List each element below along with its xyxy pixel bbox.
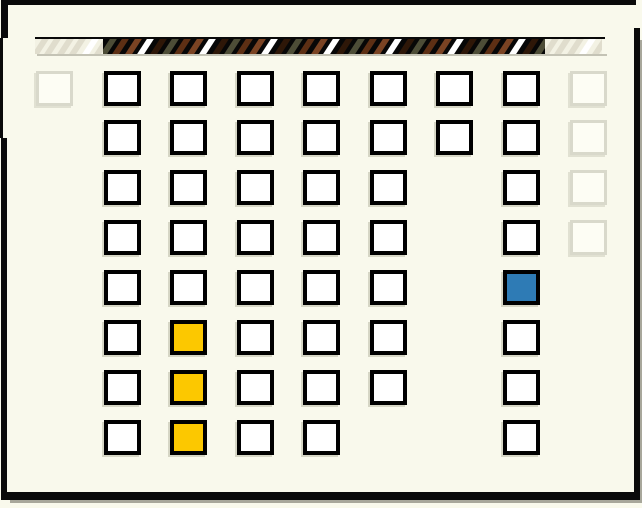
- cell-r3-c8[interactable]: [503, 170, 540, 205]
- cell-r5-c6[interactable]: [370, 270, 407, 305]
- cell-r2-c3[interactable]: [170, 120, 207, 155]
- cell-r1-c3[interactable]: [170, 71, 207, 106]
- cell-r6-c4[interactable]: [237, 320, 274, 355]
- cell-r4-c8[interactable]: [503, 220, 540, 255]
- cell-r5-c5[interactable]: [303, 270, 340, 305]
- cell-r3-c3[interactable]: [170, 170, 207, 205]
- cell-r1-c4[interactable]: [237, 71, 274, 106]
- cell-r3-c9-faded: [570, 170, 607, 205]
- frame-left-mid: [0, 38, 3, 138]
- cell-r5-c2[interactable]: [104, 270, 141, 305]
- cell-r2-c9-faded: [570, 120, 607, 155]
- window: [0, 0, 642, 508]
- cell-r2-c4[interactable]: [237, 120, 274, 155]
- scrollbar-track-left[interactable]: [35, 39, 103, 54]
- cell-r2-c2[interactable]: [104, 120, 141, 155]
- frame-top: [1, 0, 636, 5]
- cell-r4-c4[interactable]: [237, 220, 274, 255]
- cell-r8-c5[interactable]: [303, 420, 340, 455]
- cell-r8-c3-yellow[interactable]: [170, 420, 207, 455]
- cell-r5-c8-blue[interactable]: [503, 270, 540, 305]
- cell-r6-c6[interactable]: [370, 320, 407, 355]
- cell-r1-c8[interactable]: [503, 71, 540, 106]
- scrollbar-track-right[interactable]: [545, 39, 602, 54]
- cell-r5-c3[interactable]: [170, 270, 207, 305]
- cell-r4-c3[interactable]: [170, 220, 207, 255]
- cell-r1-c2[interactable]: [104, 71, 141, 106]
- scrollbar-thumb[interactable]: [103, 39, 545, 54]
- frame-bottom: [1, 492, 640, 500]
- frame-left-lower: [1, 138, 7, 500]
- cell-r1-c1-faded: [36, 71, 73, 106]
- cell-r2-c6[interactable]: [370, 120, 407, 155]
- cell-r3-c4[interactable]: [237, 170, 274, 205]
- cell-r3-c2[interactable]: [104, 170, 141, 205]
- cell-r7-c3-yellow[interactable]: [170, 370, 207, 405]
- shadow-bottom: [10, 500, 642, 503]
- cell-r7-c5[interactable]: [303, 370, 340, 405]
- cell-r7-c6[interactable]: [370, 370, 407, 405]
- cell-r3-c5[interactable]: [303, 170, 340, 205]
- cell-r7-c8[interactable]: [503, 370, 540, 405]
- cell-r6-c5[interactable]: [303, 320, 340, 355]
- cell-r3-c6[interactable]: [370, 170, 407, 205]
- cell-r1-c7[interactable]: [436, 71, 473, 106]
- striped-bar-shadow: [37, 54, 607, 56]
- cell-r7-c2[interactable]: [104, 370, 141, 405]
- cell-r4-c5[interactable]: [303, 220, 340, 255]
- cell-r1-c9-faded: [570, 71, 607, 106]
- cell-r4-c6[interactable]: [370, 220, 407, 255]
- cell-r8-c4[interactable]: [237, 420, 274, 455]
- cell-r7-c4[interactable]: [237, 370, 274, 405]
- cell-r8-c2[interactable]: [104, 420, 141, 455]
- cell-r5-c4[interactable]: [237, 270, 274, 305]
- cell-r2-c8[interactable]: [503, 120, 540, 155]
- cell-r1-c6[interactable]: [370, 71, 407, 106]
- cell-r4-c9-faded: [570, 220, 607, 255]
- frame-left-upper: [1, 0, 8, 38]
- cell-r2-c5[interactable]: [303, 120, 340, 155]
- cell-r6-c3-yellow[interactable]: [170, 320, 207, 355]
- cell-r6-c8[interactable]: [503, 320, 540, 355]
- cell-r8-c8[interactable]: [503, 420, 540, 455]
- cell-r4-c2[interactable]: [104, 220, 141, 255]
- cell-r1-c5[interactable]: [303, 71, 340, 106]
- cell-r2-c7[interactable]: [436, 120, 473, 155]
- cell-r6-c2[interactable]: [104, 320, 141, 355]
